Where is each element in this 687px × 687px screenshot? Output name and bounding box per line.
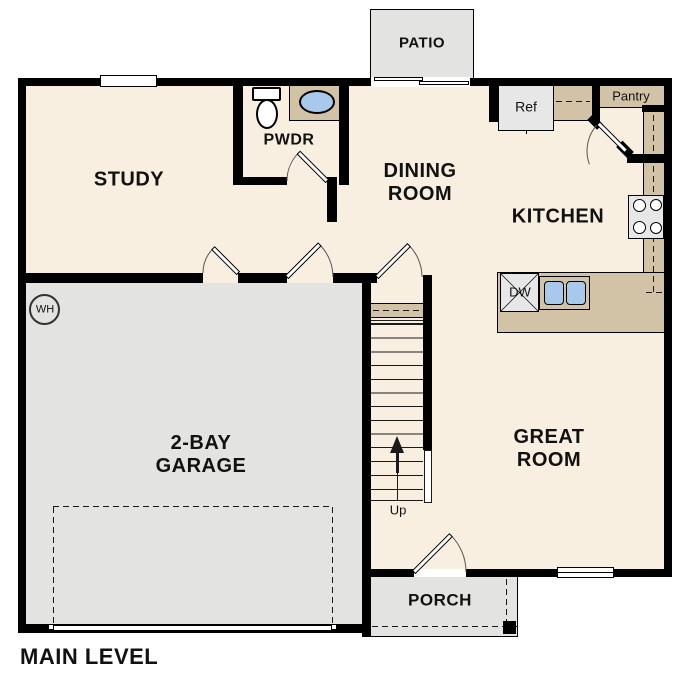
porch-post [503,621,516,634]
fixture-label-pantry: Pantry [612,85,650,108]
burner-icon [650,199,662,211]
fixture-label-dw: DW [509,281,531,304]
toilet-fixture-bowl [256,99,278,129]
pantry-shelf-dash [653,115,654,152]
room-label-study: STUDY [94,169,164,192]
up-arrow-shaft [396,451,399,473]
wall-pwdr-south [233,177,287,185]
wall-study-garage-1 [18,273,203,283]
wall-right [664,78,672,577]
wall-hall-divider-stub [327,177,337,222]
sliding-door-panel-left [374,77,423,81]
counter-beside-ref [553,84,593,121]
stairs-lower-left [371,447,397,501]
garage-door-outline-top [53,506,333,507]
refrigerator-tick [526,130,527,134]
fixture-label-ref: Ref [515,96,537,119]
counter-corner-dash [646,292,664,293]
stove-fixture [628,195,664,239]
floor-plan: STUDY PWDR DINING ROOM KITCHEN GREAT ROO… [0,0,687,687]
wall-stair-east [423,275,432,450]
room-label-pwdr: PWDR [264,129,315,152]
garage-door-end-cap-left [48,624,54,630]
porch-rail-dash-horizontal [372,626,518,627]
counter-beside-ref-dash [556,101,590,102]
water-heater-label: WH [36,299,54,322]
garage-door [52,625,335,631]
stair-railing [424,450,432,503]
burner-icon [633,199,646,212]
room-label-great-room: GREAT ROOM [513,426,584,472]
window-great-room-mullion [558,572,613,573]
stairs-lower-right [397,447,423,501]
stairs-up-label: Up [390,499,407,522]
sink-basin-right [566,281,586,305]
page-title: MAIN LEVEL [20,644,158,670]
room-label-porch: PORCH [408,589,472,612]
garage-door-outline-left [53,507,54,625]
wall-study-garage-2 [238,273,287,283]
sliding-door-panel-right [419,81,469,85]
room-label-garage: 2-BAY GARAGE [156,432,247,478]
wall-pwdr-east [339,86,349,185]
vanity-sink-fixture [299,90,335,114]
room-label-dining: DINING ROOM [384,160,457,206]
closet-shelf-dash [373,310,421,311]
sink-basin-left [544,281,564,305]
burner-icon [650,222,662,234]
garage-door-outline-right [332,507,333,625]
window-study [100,75,157,87]
porch-rail-dash-vertical [506,579,507,626]
room-label-kitchen: KITCHEN [512,206,604,229]
vanity-counter [289,85,346,121]
garage-door-end-cap-right [331,624,337,630]
burner-icon [633,221,646,234]
wall-stair-west [362,273,371,637]
wall-pantry-south [627,154,664,163]
wall-left [18,78,26,633]
room-label-patio: PATIO [399,32,445,55]
window-great-room [557,567,614,578]
kitchen-sink-fixture [539,276,590,310]
wall-study-east [233,86,243,181]
stairs-upper-run [371,324,423,447]
